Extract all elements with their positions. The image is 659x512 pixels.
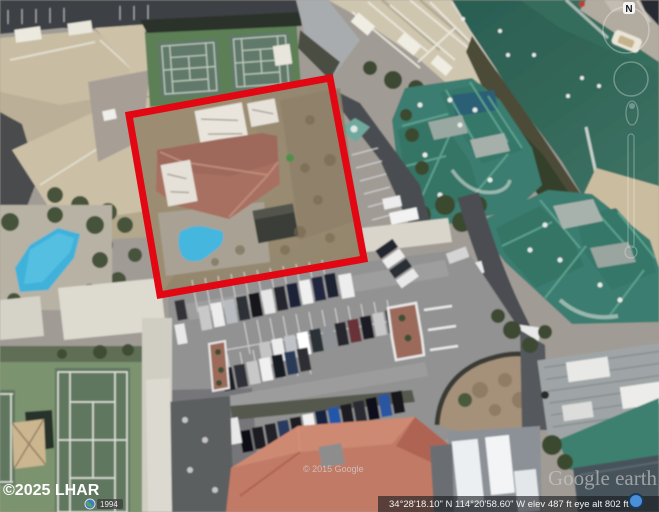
svg-text:34°28'18.10" N 114°20'58.60": 34°28'18.10" N 114°20'58.60" W elev 487 … [389, 499, 629, 510]
svg-text:1994: 1994 [100, 500, 118, 509]
svg-text:©2025 LHAR: ©2025 LHAR [3, 482, 100, 499]
svg-text:N: N [625, 4, 632, 15]
svg-text:© 2015 Google: © 2015 Google [303, 464, 364, 474]
svg-text:Google earth: Google earth [548, 466, 658, 490]
